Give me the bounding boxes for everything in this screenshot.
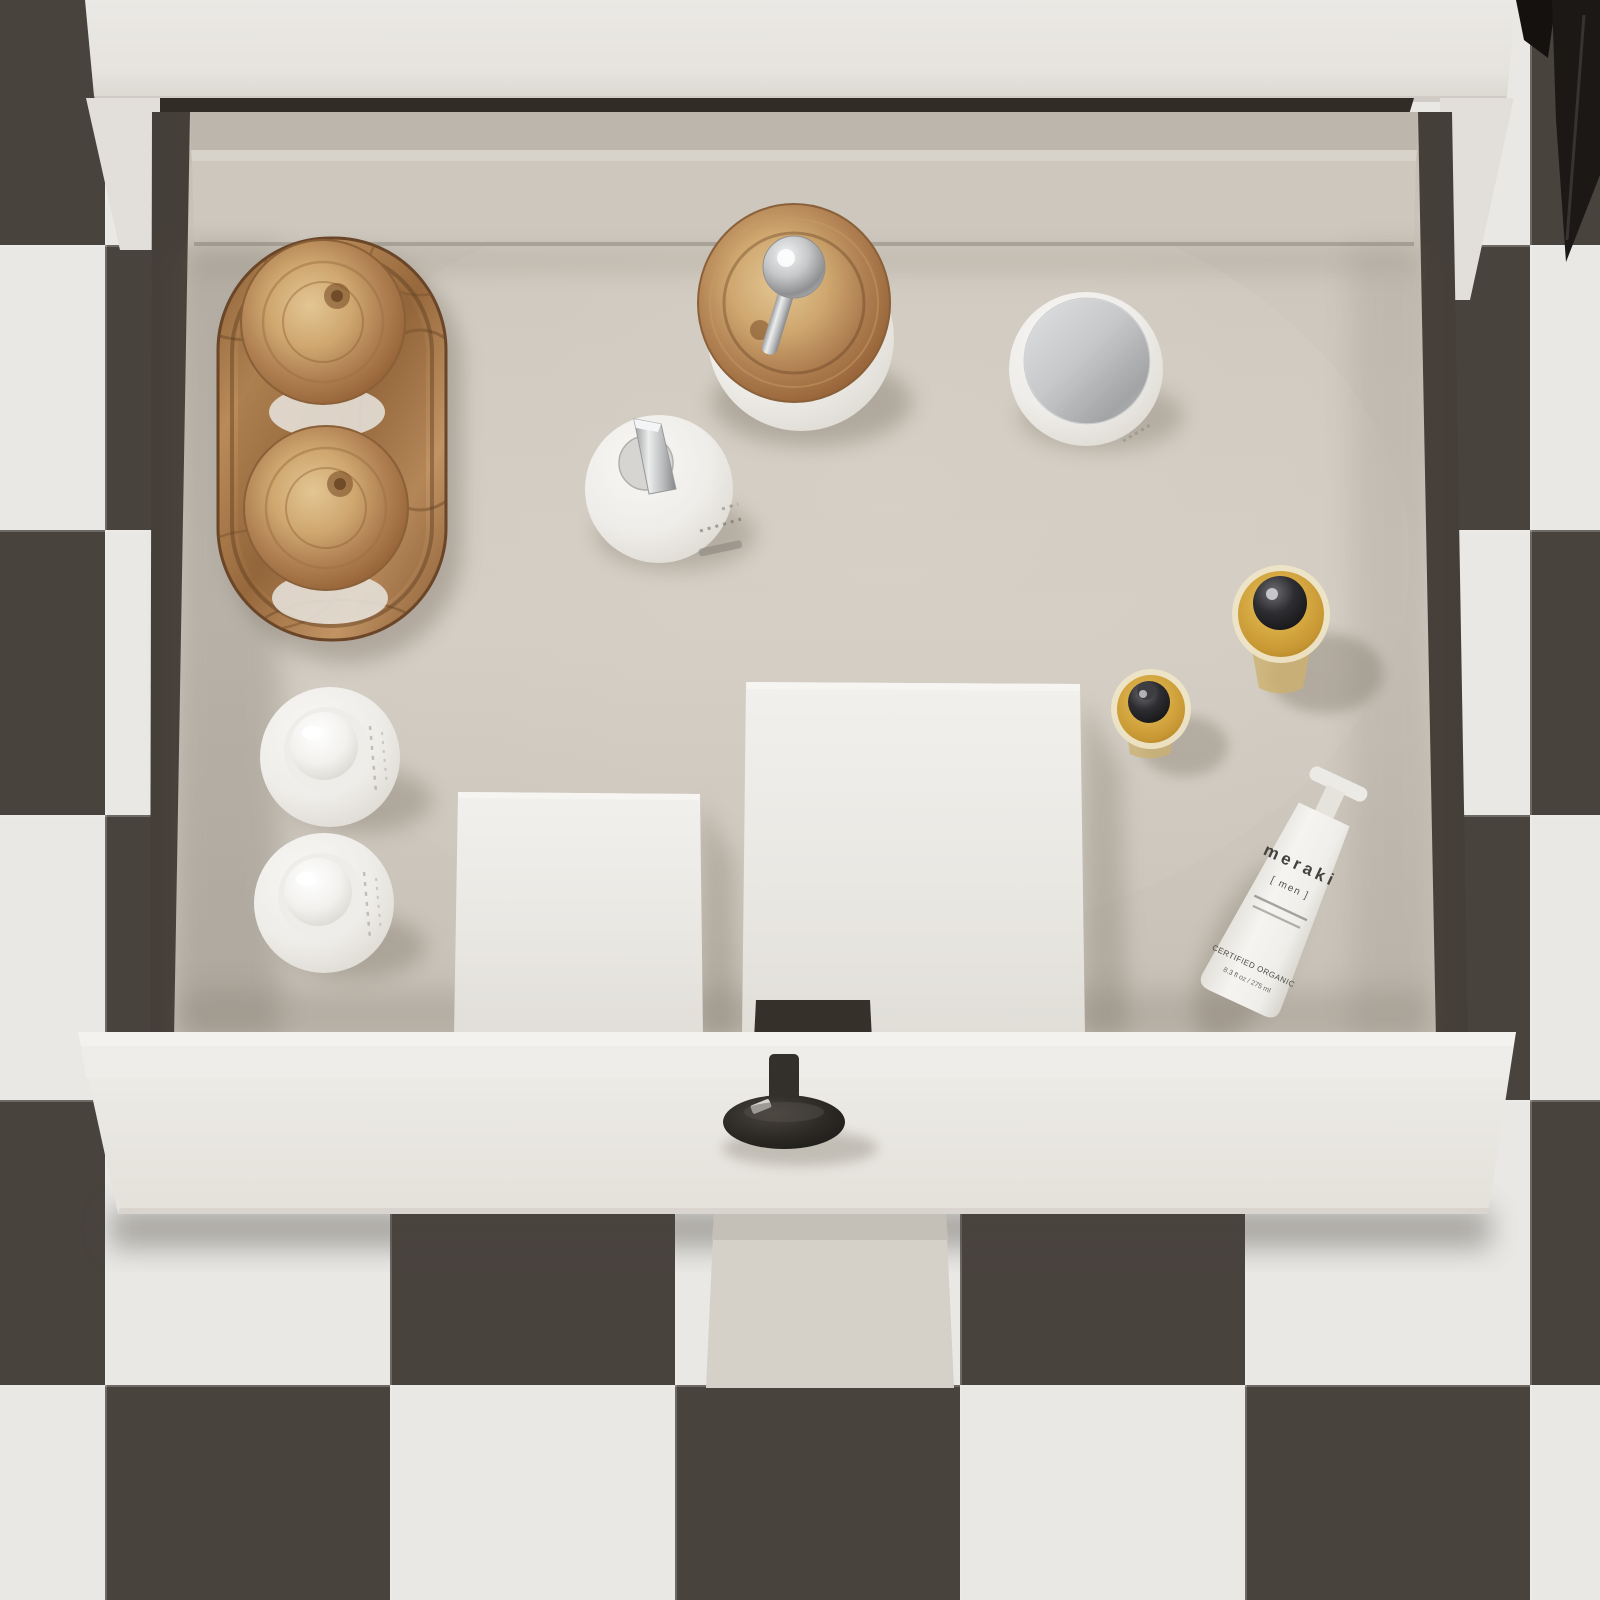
white-box-small (454, 792, 737, 1036)
bathroom-scene: meraki [ men ] CERTIFIED ORGANIC 8.3 fl … (0, 0, 1600, 1600)
sink-pedestal (706, 1214, 954, 1388)
drawer-front (78, 1032, 1516, 1388)
white-box-large (742, 682, 1128, 1040)
dark-object-top-right (1516, 0, 1600, 262)
cabinet-side-left (86, 98, 160, 250)
scene-render: meraki [ men ] CERTIFIED ORGANIC 8.3 fl … (0, 0, 1600, 1600)
